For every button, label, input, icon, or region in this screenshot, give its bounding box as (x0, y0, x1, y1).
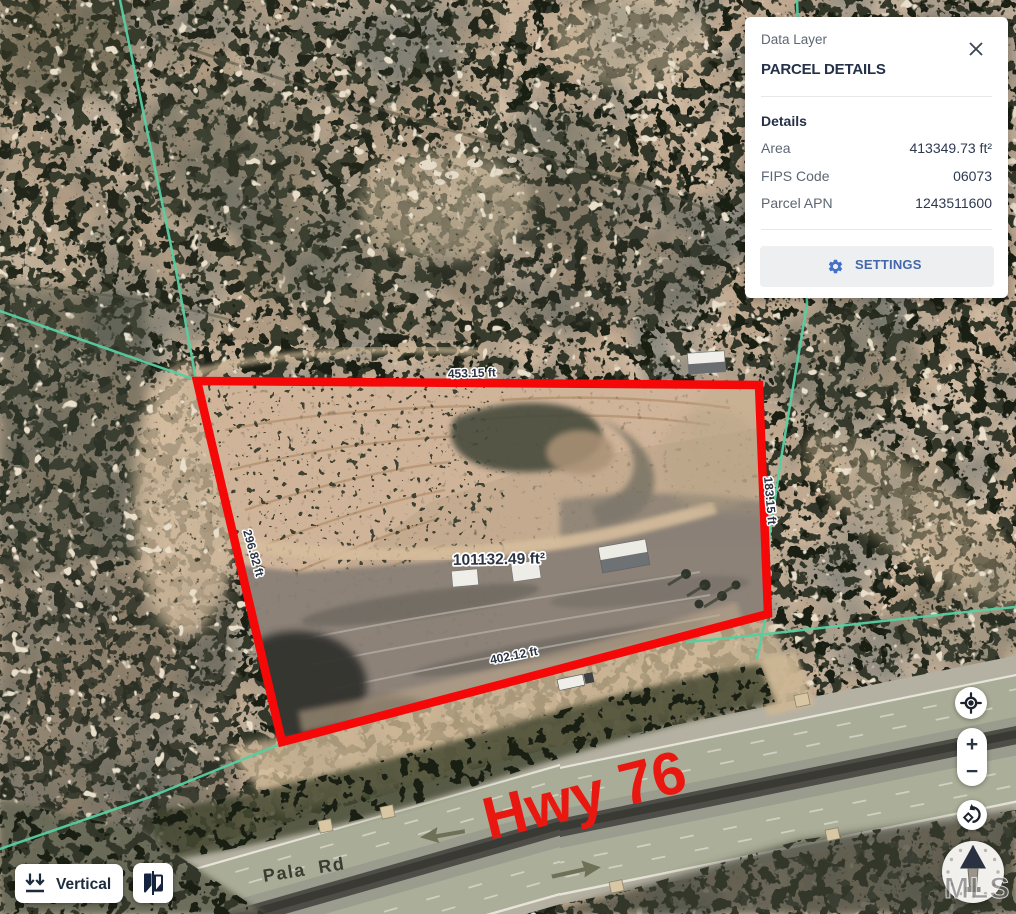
svg-text:101132.49 ft²: 101132.49 ft² (453, 550, 546, 569)
svg-text:453.15 ft: 453.15 ft (448, 365, 496, 381)
